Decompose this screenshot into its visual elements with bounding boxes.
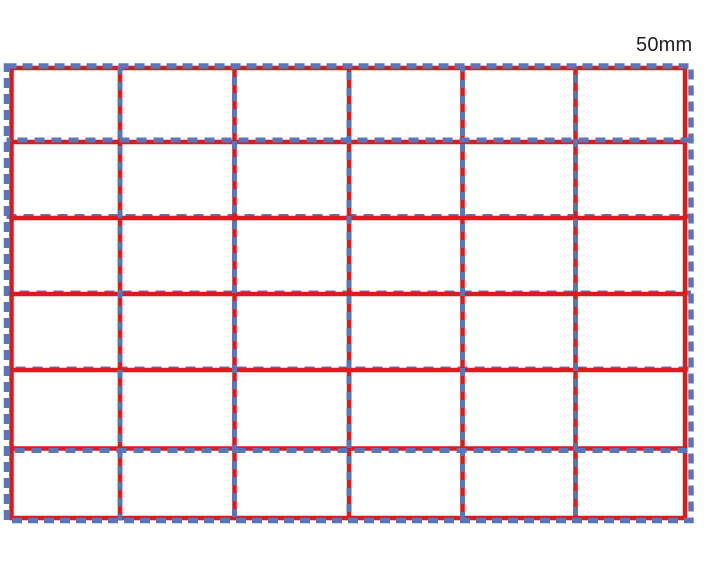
figure-canvas: 50mm xyxy=(0,0,720,570)
dimension-label-50mm: 50mm xyxy=(636,34,692,57)
grid-diagram xyxy=(0,0,720,570)
